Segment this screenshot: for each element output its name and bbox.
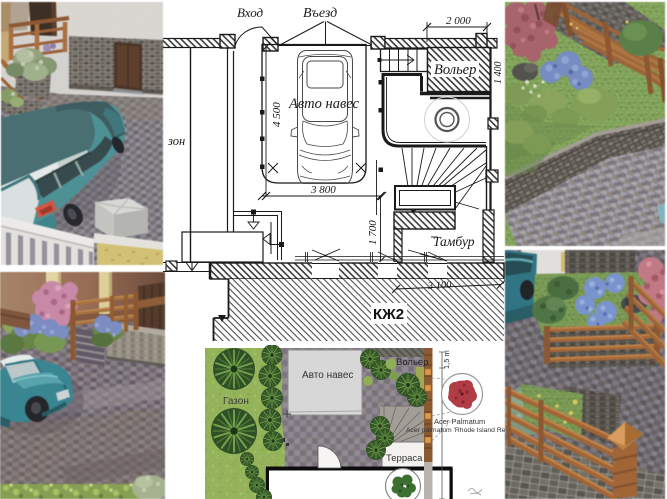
svg-text:зон: зон <box>167 134 185 148</box>
svg-text:Acer Palmatum: Acer Palmatum <box>434 417 485 426</box>
svg-text:Авто навес: Авто навес <box>302 370 353 381</box>
svg-text:4 500: 4 500 <box>271 102 283 127</box>
svg-text:Терраса: Терраса <box>386 453 423 464</box>
svg-text:Авто навес: Авто навес <box>288 96 359 112</box>
svg-text:3 100: 3 100 <box>427 280 453 292</box>
svg-text:1,5 m: 1,5 m <box>442 350 451 369</box>
svg-text:Въезд: Въезд <box>303 6 337 21</box>
svg-text:2 000: 2 000 <box>446 15 471 27</box>
svg-text:3 800: 3 800 <box>310 184 336 196</box>
svg-text:1 400: 1 400 <box>493 62 504 85</box>
svg-text:1 700: 1 700 <box>367 220 379 245</box>
svg-text:Тамбур: Тамбур <box>433 234 475 249</box>
svg-text:КЖ2: КЖ2 <box>373 306 404 323</box>
svg-text:Вольер: Вольер <box>396 357 428 368</box>
svg-text:Вход: Вход <box>237 5 264 20</box>
svg-text:Газон: Газон <box>223 396 249 407</box>
svg-text:Вольер: Вольер <box>434 62 476 78</box>
svg-text:Acer palmatum 'Rhode Island Re: Acer palmatum 'Rhode Island Red' <box>406 427 505 434</box>
